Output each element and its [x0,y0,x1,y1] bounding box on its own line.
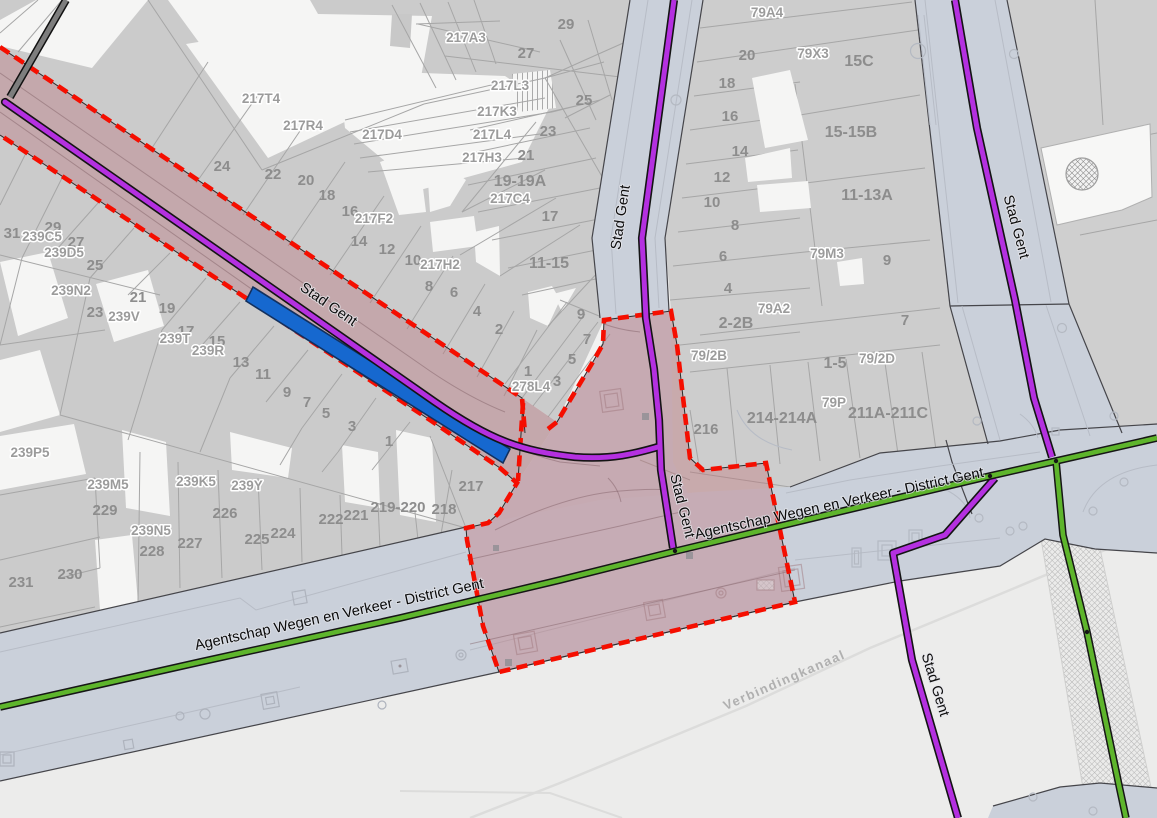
svg-text:18: 18 [719,75,736,92]
svg-text:79X3: 79X3 [797,46,829,61]
svg-text:22: 22 [265,166,282,183]
svg-text:239K5: 239K5 [176,474,216,489]
svg-text:3: 3 [553,373,561,390]
svg-text:19-19A: 19-19A [494,173,547,190]
svg-text:2: 2 [495,321,503,338]
svg-text:217T4: 217T4 [242,91,281,106]
svg-text:239M5: 239M5 [87,477,129,492]
svg-text:222: 222 [318,511,343,528]
svg-text:1-5: 1-5 [823,355,846,372]
svg-text:6: 6 [719,248,727,265]
svg-text:10: 10 [405,252,422,269]
svg-text:25: 25 [87,257,104,274]
svg-text:23: 23 [540,123,557,140]
svg-text:231: 231 [8,574,33,591]
svg-text:9: 9 [883,252,891,269]
svg-text:217L3: 217L3 [491,78,530,93]
svg-text:239Y: 239Y [231,478,263,493]
svg-text:20: 20 [298,172,315,189]
svg-text:7: 7 [901,312,909,329]
svg-text:217D4: 217D4 [362,127,402,142]
svg-text:14: 14 [351,233,368,250]
svg-text:6: 6 [450,284,458,301]
svg-text:8: 8 [731,217,739,234]
svg-text:219-220: 219-220 [370,499,425,516]
svg-text:225: 225 [244,531,269,548]
svg-text:79/2D: 79/2D [859,351,895,366]
svg-text:31: 31 [4,225,21,242]
svg-text:226: 226 [212,505,237,522]
svg-text:15C: 15C [844,53,874,70]
svg-text:12: 12 [379,241,396,258]
svg-text:217F2: 217F2 [355,211,393,226]
svg-text:18: 18 [319,187,336,204]
svg-text:24: 24 [214,158,231,175]
svg-text:7: 7 [303,394,311,411]
svg-text:9: 9 [283,384,291,401]
svg-text:27: 27 [518,45,535,62]
svg-text:16: 16 [722,108,739,125]
svg-text:21: 21 [130,289,147,306]
svg-text:239V: 239V [108,309,140,324]
svg-text:7: 7 [583,331,591,348]
svg-text:224: 224 [270,525,296,542]
svg-text:3: 3 [348,418,356,435]
svg-text:23: 23 [87,304,104,321]
svg-text:4: 4 [724,280,733,297]
svg-text:216: 216 [693,421,718,438]
svg-text:15-15B: 15-15B [825,124,877,141]
svg-text:217H3: 217H3 [462,150,502,165]
svg-text:221: 221 [343,507,368,524]
svg-text:217C4: 217C4 [490,191,530,206]
svg-text:11-13A: 11-13A [841,187,893,204]
svg-text:5: 5 [322,405,330,422]
svg-text:214-214A: 214-214A [747,410,818,427]
svg-text:217A3: 217A3 [446,30,486,45]
svg-text:217: 217 [458,478,483,495]
svg-text:230: 230 [57,566,82,583]
svg-text:239N5: 239N5 [131,523,171,538]
svg-text:12: 12 [714,169,731,186]
svg-text:217H2: 217H2 [420,257,460,272]
svg-text:25: 25 [576,92,593,109]
svg-text:217K3: 217K3 [477,104,517,119]
svg-text:239N2: 239N2 [51,283,91,298]
svg-text:8: 8 [425,278,433,295]
svg-text:29: 29 [558,16,575,33]
svg-text:21: 21 [518,147,535,164]
svg-text:11-15: 11-15 [529,255,569,272]
svg-text:5: 5 [568,351,576,368]
svg-text:239P5: 239P5 [10,445,50,460]
svg-text:1: 1 [524,363,532,380]
svg-text:239R: 239R [192,343,225,358]
svg-text:228: 228 [139,543,164,560]
svg-text:239D5: 239D5 [44,245,84,260]
svg-text:13: 13 [233,354,250,371]
svg-text:239C5: 239C5 [22,229,62,244]
svg-text:227: 227 [177,535,202,552]
svg-text:239T: 239T [160,331,192,346]
svg-text:218: 218 [431,501,456,518]
svg-text:278L4: 278L4 [512,379,551,394]
svg-text:2-2B: 2-2B [719,315,754,332]
svg-text:211A-211C: 211A-211C [848,405,929,422]
svg-text:9: 9 [577,306,585,323]
svg-text:11: 11 [255,366,271,383]
svg-text:17: 17 [542,208,559,225]
svg-text:79A4: 79A4 [751,5,784,20]
svg-text:20: 20 [739,47,756,64]
svg-text:217L4: 217L4 [473,127,512,142]
svg-text:4: 4 [473,303,482,320]
svg-text:19: 19 [159,300,176,317]
svg-text:14: 14 [732,143,749,160]
svg-text:217R4: 217R4 [283,118,323,133]
svg-text:229: 229 [92,502,117,519]
svg-text:79/2B: 79/2B [691,348,727,363]
svg-text:79M3: 79M3 [810,246,844,261]
svg-text:79P: 79P [822,395,846,410]
svg-text:1: 1 [385,433,393,450]
svg-text:79A2: 79A2 [758,301,790,316]
svg-text:10: 10 [704,194,721,211]
